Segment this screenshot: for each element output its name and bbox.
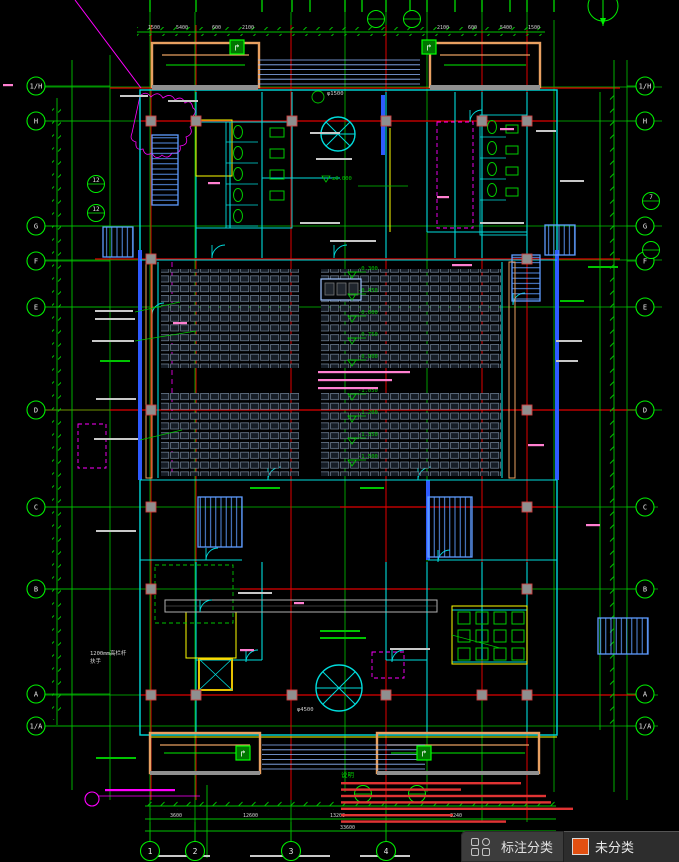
pink-text-bar [3, 84, 13, 86]
column-label: 1 [148, 847, 153, 856]
exit-icon-arrow: ↱ [421, 750, 426, 760]
revision-tag-bubble [85, 792, 99, 806]
dim-total: 33600 [340, 825, 355, 831]
micro-text-bar [330, 240, 376, 242]
note-line-bar [341, 782, 521, 784]
dim-ticks [137, 27, 545, 36]
dim-value: 5400 [176, 25, 188, 31]
guardrail-note: 1200mm高栏杆 [90, 649, 127, 657]
pink-text-bar [240, 649, 254, 651]
pink-text-bar [528, 444, 544, 446]
row-label: B [643, 586, 647, 594]
green-text-bar [96, 757, 136, 759]
micro-text-bar [300, 222, 340, 224]
annotation-toolbar: 标注分类 未分类 [461, 831, 679, 862]
pink-text-bar [294, 602, 304, 604]
note-line-bar [341, 820, 506, 822]
micro-text-bar [95, 310, 133, 312]
stair-treads [152, 135, 178, 205]
dim-value: 600 [468, 25, 477, 31]
level-value: -0.300 [358, 266, 378, 272]
green-text-bar [250, 487, 280, 489]
platform-strip [150, 771, 260, 775]
stair-treads [198, 497, 242, 547]
column-label: 3 [289, 847, 294, 856]
detail-tag: 12 [92, 177, 100, 184]
row-label: F [34, 258, 38, 266]
pink-text-bar [318, 387, 378, 389]
green-text-bar [560, 300, 584, 302]
column [522, 405, 532, 415]
dim-value: 2100 [437, 25, 449, 31]
pink-text-bar [437, 196, 449, 198]
micro-text-bar [96, 398, 136, 400]
micro-text-bar [92, 340, 134, 342]
detail-tag: 7 [649, 194, 653, 201]
pink-text-bar [173, 322, 187, 324]
green-text-bar [320, 630, 360, 632]
notes-header: 说明 [341, 770, 355, 779]
booth-window [349, 283, 358, 295]
exit-icon-arrow: ↱ [234, 44, 239, 54]
seat-bank [321, 393, 501, 476]
micro-text-bar [238, 592, 272, 594]
level-value: -1.200 [358, 410, 378, 416]
row-label: C [34, 504, 38, 512]
pink-text-bar [208, 182, 220, 184]
micro-text-bar [560, 180, 584, 182]
cad-viewer-screen: 1500540060021002100600540015003600126001… [0, 0, 679, 862]
note-line-bar [341, 808, 573, 810]
column [522, 254, 532, 264]
stair-treads [598, 618, 648, 654]
column [191, 690, 201, 700]
column [477, 116, 487, 126]
level-value: -0.750 [358, 332, 378, 338]
pink-text-bar [318, 371, 410, 373]
seat-bank [161, 269, 299, 368]
pink-text-bar [500, 128, 514, 130]
column [522, 584, 532, 594]
level-value: -1.350 [358, 432, 378, 438]
stair-treads [428, 497, 472, 557]
note-line-bar [341, 788, 461, 790]
stair-treads [545, 225, 575, 255]
micro-text-bar [536, 130, 556, 132]
exit-icon-arrow: ↱ [240, 750, 245, 760]
column [146, 116, 156, 126]
micro-text-bar [310, 132, 340, 134]
unclassified-filter[interactable]: 未分类 [563, 831, 679, 862]
column [522, 116, 532, 126]
row-label: E [34, 304, 38, 312]
level-value: -0.450 [358, 288, 378, 294]
row-label: 1/A [639, 723, 652, 731]
green-text-bar [588, 266, 618, 268]
platform-strip [152, 85, 258, 90]
row-label: H [34, 118, 38, 126]
column-label: 2 [193, 847, 198, 856]
row-label: 1/H [639, 83, 652, 91]
dim-value: 1500 [528, 25, 540, 31]
micro-text-bar [95, 318, 135, 320]
note-line-bar [341, 814, 453, 816]
platform-strip [430, 85, 540, 90]
micro-text-bar [480, 222, 524, 224]
detail-tag: 12 [92, 206, 100, 213]
row-label: F [643, 258, 647, 266]
guardrail-note: 扶手 [90, 657, 102, 665]
seat-bank [161, 393, 299, 476]
unclassified-color-swatch [572, 838, 589, 855]
column [522, 502, 532, 512]
dim-value: 5400 [500, 25, 512, 31]
column [381, 116, 391, 126]
pink-text-bar [318, 379, 392, 381]
revision-tag-text-bar [105, 789, 175, 791]
dim-value: 2100 [242, 25, 254, 31]
column [146, 405, 156, 415]
micro-text-bar [94, 438, 138, 440]
green-text-bar [320, 637, 366, 639]
column [146, 690, 156, 700]
column [191, 116, 201, 126]
categories-icon[interactable] [470, 836, 492, 858]
diameter-label: φ1500 [327, 91, 344, 97]
datum-level: ±0.000 [332, 176, 352, 182]
diameter-label: φ4500 [297, 707, 314, 713]
platform-strip [377, 771, 539, 775]
unclassified-label: 未分类 [595, 837, 634, 856]
row-label: E [643, 304, 647, 312]
column-label: 4 [384, 847, 389, 856]
row-label: H [643, 118, 647, 126]
note-line-bar [341, 795, 546, 797]
column [287, 690, 297, 700]
floor-plan-canvas[interactable]: 1500540060021002100600540015003600126001… [0, 0, 679, 862]
booth-window [325, 283, 334, 295]
column [522, 690, 532, 700]
row-label: G [34, 223, 38, 231]
booth-window [337, 283, 346, 295]
micro-text-bar [390, 648, 430, 650]
row-label: D [643, 407, 647, 415]
level-value: -0.900 [358, 354, 378, 360]
row-label: 1/A [30, 723, 43, 731]
column [146, 502, 156, 512]
column [287, 116, 297, 126]
row-label: B [34, 586, 38, 594]
micro-text-bar [96, 530, 136, 532]
level-value: -0.600 [358, 310, 378, 316]
column [477, 690, 487, 700]
column [381, 690, 391, 700]
dim-value: 600 [212, 25, 221, 31]
pink-text-bar [452, 264, 472, 266]
micro-text-bar [556, 340, 582, 342]
row-label: D [34, 407, 38, 415]
pink-text-bar [586, 524, 600, 526]
green-text-bar [100, 360, 130, 362]
row-label: G [643, 223, 647, 231]
level-value: -1.500 [358, 454, 378, 460]
green-text-bar [360, 487, 384, 489]
row-label: C [643, 504, 647, 512]
annotation-categories-label: 标注分类 [501, 837, 553, 856]
micro-text-bar [168, 100, 198, 102]
stair-treads [103, 227, 133, 257]
column [146, 254, 156, 264]
dim-value: 1500 [148, 25, 160, 31]
column [146, 584, 156, 594]
micro-text-bar [120, 95, 148, 97]
dim-value: 12600 [243, 813, 258, 819]
row-label: 1/H [30, 83, 43, 91]
dim-value: 3600 [170, 813, 182, 819]
micro-text-bar [316, 158, 352, 160]
micro-text-bar [556, 360, 578, 362]
exit-icon-arrow: ↱ [426, 44, 431, 54]
note-line-bar [341, 801, 551, 803]
